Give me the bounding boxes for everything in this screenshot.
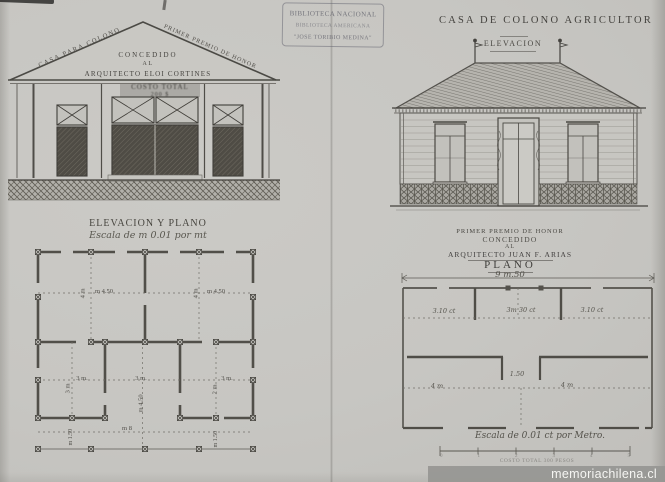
left-sign-line2: 200 $ (120, 92, 200, 98)
left-plan-porch-right: m 1.50 (213, 424, 219, 454)
doors (57, 97, 243, 176)
right-plan-dim-room-right: 4 m (552, 382, 582, 389)
left-elevation-drawing (8, 8, 293, 208)
left-plan-room4-height: 2 m (213, 378, 220, 400)
left-plan-room2-width: m 4.50 (201, 289, 231, 296)
center-fold-line (330, 0, 333, 482)
right-scale-note: Escala de 0.01 ct por Metro. (460, 432, 620, 441)
page-edge-mark (0, 0, 54, 4)
stamp-line3: "JOSE TORIBIO MEDINA" (283, 34, 383, 41)
right-plan-dim-room-left: 4 m (422, 383, 452, 390)
left-plan-room2-height: 4 m (194, 283, 201, 303)
right-cost-note: COSTO TOTAL 300 PESOS (467, 459, 607, 465)
left-window (433, 122, 467, 186)
left-award-line1: CONCEDIDO (98, 52, 198, 59)
left-sign-line1: COSTO TOTAL (120, 84, 200, 91)
left-plan-porch-left: m 1.50 (68, 422, 74, 452)
left-plan-hall-height: m 4.50 (139, 388, 146, 418)
stamp-line2: BIBLIOTECA AMERICANA (283, 22, 383, 29)
left-award-line3: ARQUITECTO ELOI CORTINES (73, 71, 223, 78)
right-window (566, 122, 600, 186)
left-section-title: ELEVACION Y PLANO (88, 219, 208, 230)
watermark-text: memoriachilena.cl (551, 467, 657, 481)
left-plan-room3-height: 3 m (66, 377, 73, 399)
hipped-roof (392, 63, 646, 113)
scale-tick: 5 (628, 454, 631, 459)
right-plan-dim-door: 1.50 (502, 371, 532, 378)
left-award-line2: AL (98, 61, 198, 67)
library-stamp: BIBLIOTECA NACIONAL BIBLIOTECA AMERICANA… (282, 2, 385, 47)
right-title: CASA DE COLONO AGRICULTOR (426, 15, 665, 26)
left-plan-overall-width: m 8 (112, 426, 142, 433)
right-award-line4: ARQUITECTO JUAN F. ARIAS (445, 251, 575, 259)
finials (474, 39, 567, 63)
left-plan-hall-width: 3 m. (127, 376, 155, 383)
front-door (498, 118, 540, 206)
scanned-drawing-sheet: CASA PARA COLONO PRIMER PREMIO DE HONOR … (0, 0, 665, 482)
interior-walls (407, 288, 648, 380)
right-plan-dim-left: 3.10 ct (424, 308, 464, 315)
right-award-line2: CONCEDIDO (450, 236, 570, 244)
overall-dimension-line (402, 273, 654, 283)
right-plan-dim-right: 3.10 ct (572, 307, 612, 314)
left-plan-room1-width: m 4.50 (89, 289, 119, 296)
stamp-line1: BIBLIOTECA NACIONAL (283, 9, 383, 18)
left-plan-room1-height: 4 m (81, 283, 88, 303)
ground (8, 175, 280, 200)
left-scale-note: Escala de m 0.01 por mt (83, 231, 213, 241)
right-elevation-drawing (390, 36, 660, 216)
watermark-bar: memoriachilena.cl (428, 466, 665, 482)
right-floor-plan (393, 268, 663, 440)
scale-tick: 0 (440, 454, 443, 459)
right-plan-dim-center: 3m 30 ct (499, 307, 543, 314)
